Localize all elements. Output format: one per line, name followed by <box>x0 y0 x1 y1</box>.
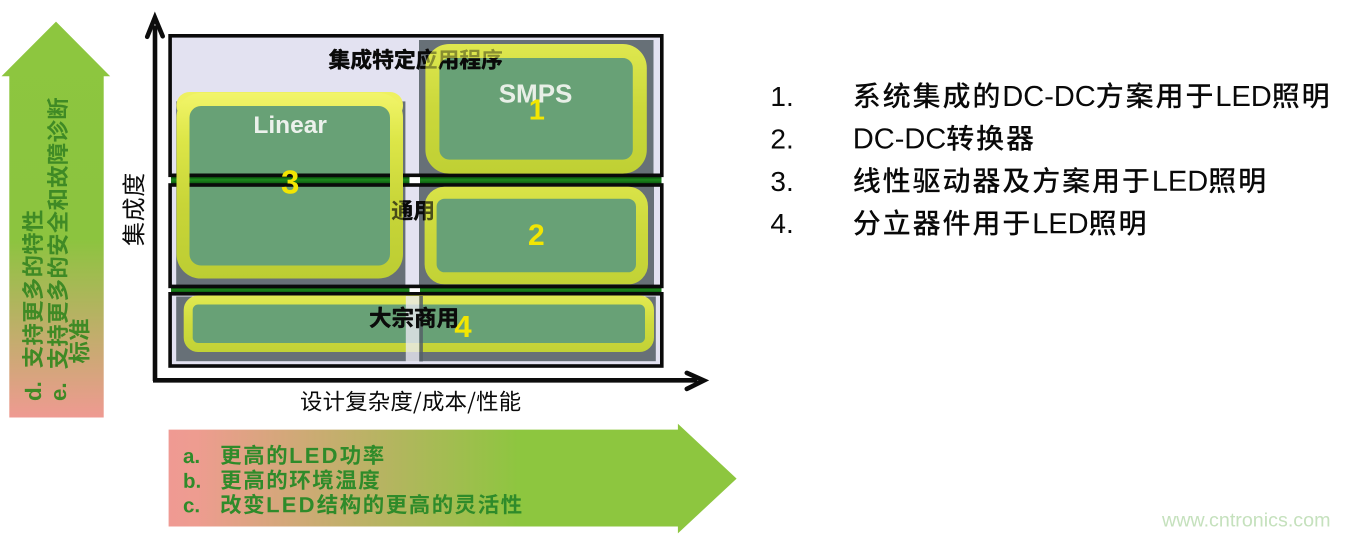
svg-text:3.: 3. <box>770 166 793 197</box>
svg-text:2: 2 <box>528 219 545 252</box>
svg-text:2.: 2. <box>770 123 793 154</box>
svg-text:4.: 4. <box>770 208 793 239</box>
svg-text:4: 4 <box>454 309 472 344</box>
svg-text:Linear: Linear <box>253 112 327 139</box>
svg-text:1: 1 <box>529 95 545 127</box>
svg-text:1.: 1. <box>770 81 793 112</box>
svg-text:3: 3 <box>281 164 299 201</box>
svg-text:www.cntronics.com: www.cntronics.com <box>1161 510 1330 532</box>
